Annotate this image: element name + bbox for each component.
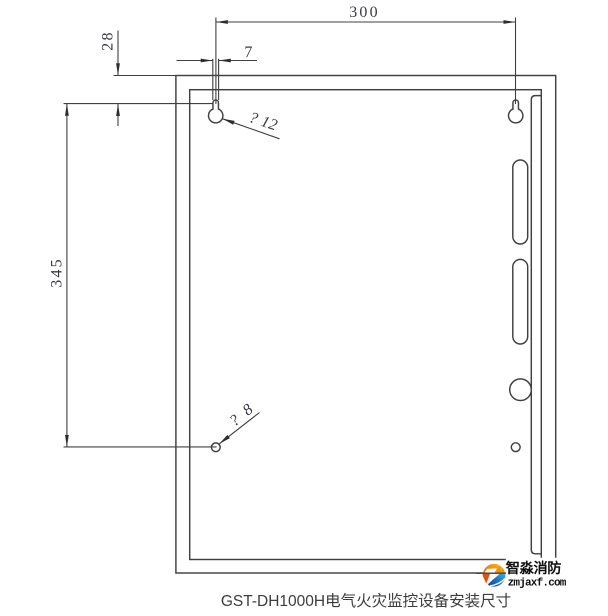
- svg-text:7: 7: [244, 44, 254, 61]
- svg-text:zmjaxf.com: zmjaxf.com: [508, 577, 567, 589]
- svg-text:345: 345: [49, 257, 66, 288]
- svg-text:GST-DH1000H电气火灾监控设备安装尺寸: GST-DH1000H电气火灾监控设备安装尺寸: [221, 592, 511, 610]
- svg-text:28: 28: [100, 30, 117, 50]
- svg-text:智淼消防: 智淼消防: [506, 560, 562, 577]
- svg-text:300: 300: [349, 4, 380, 21]
